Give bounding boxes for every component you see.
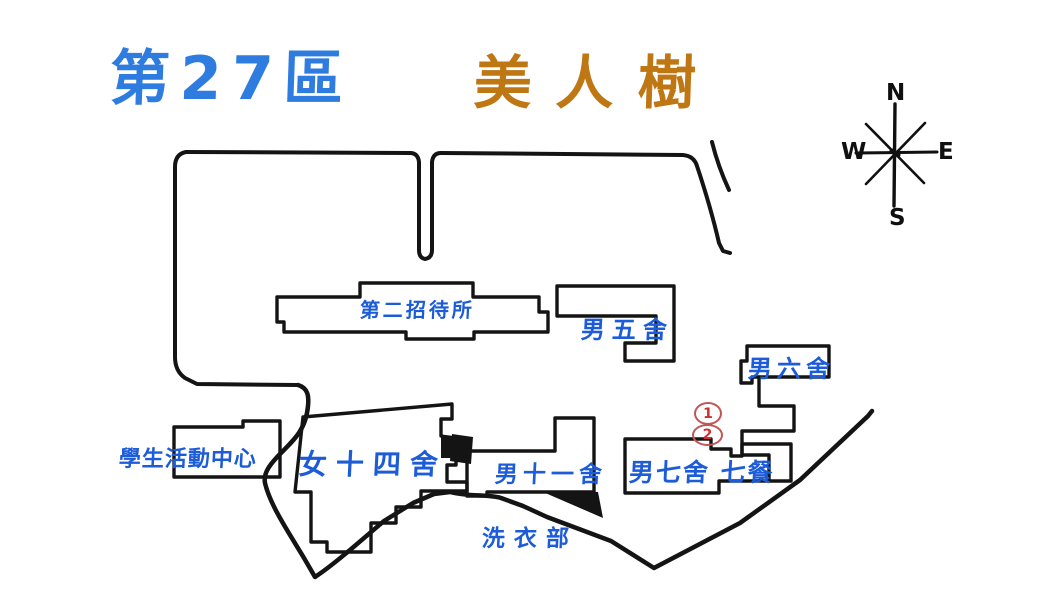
map-marker-2-number: 2	[703, 427, 713, 443]
label-male-dorm-11: 男十一舍	[494, 455, 608, 489]
label-second-guest-house: 第二招待所	[359, 294, 476, 323]
boundary-west-road	[175, 152, 298, 385]
map-marker-1-number: 1	[703, 406, 713, 422]
compass-west-label: W	[841, 139, 866, 165]
page-title-district: 第27區	[108, 30, 355, 117]
boundary-ne-diagonal	[712, 142, 729, 190]
compass-south-label: S	[889, 205, 906, 231]
map-marker-1: 1	[694, 402, 722, 425]
label-female-dorm-14: 女十四舍	[298, 443, 448, 483]
label-male-dorm-5: 男五舍	[580, 310, 675, 345]
compass-rose	[856, 104, 937, 206]
ink-spur	[543, 492, 603, 518]
boundary-north	[186, 152, 730, 259]
label-male-dorm-7-cafeteria-7: 男七舍 七餐	[628, 453, 776, 489]
compass-center	[892, 151, 898, 155]
compass-east-label: E	[938, 139, 954, 165]
label-student-activity-center: 學生活動中心	[118, 441, 258, 473]
slide-map-district-27: 第27區 美人樹 第二招待所 男五舍 男六舍 學生活動中心 女十四舍 男十一舍 …	[0, 0, 1042, 600]
compass-north-label: N	[886, 80, 905, 106]
page-title-area-name: 美人樹	[473, 36, 722, 120]
label-laundry-dept: 洗衣部	[481, 519, 579, 553]
ink-blob-2	[450, 434, 473, 464]
label-male-dorm-6: 男六舍	[747, 349, 836, 384]
map-marker-2: 2	[692, 424, 723, 446]
